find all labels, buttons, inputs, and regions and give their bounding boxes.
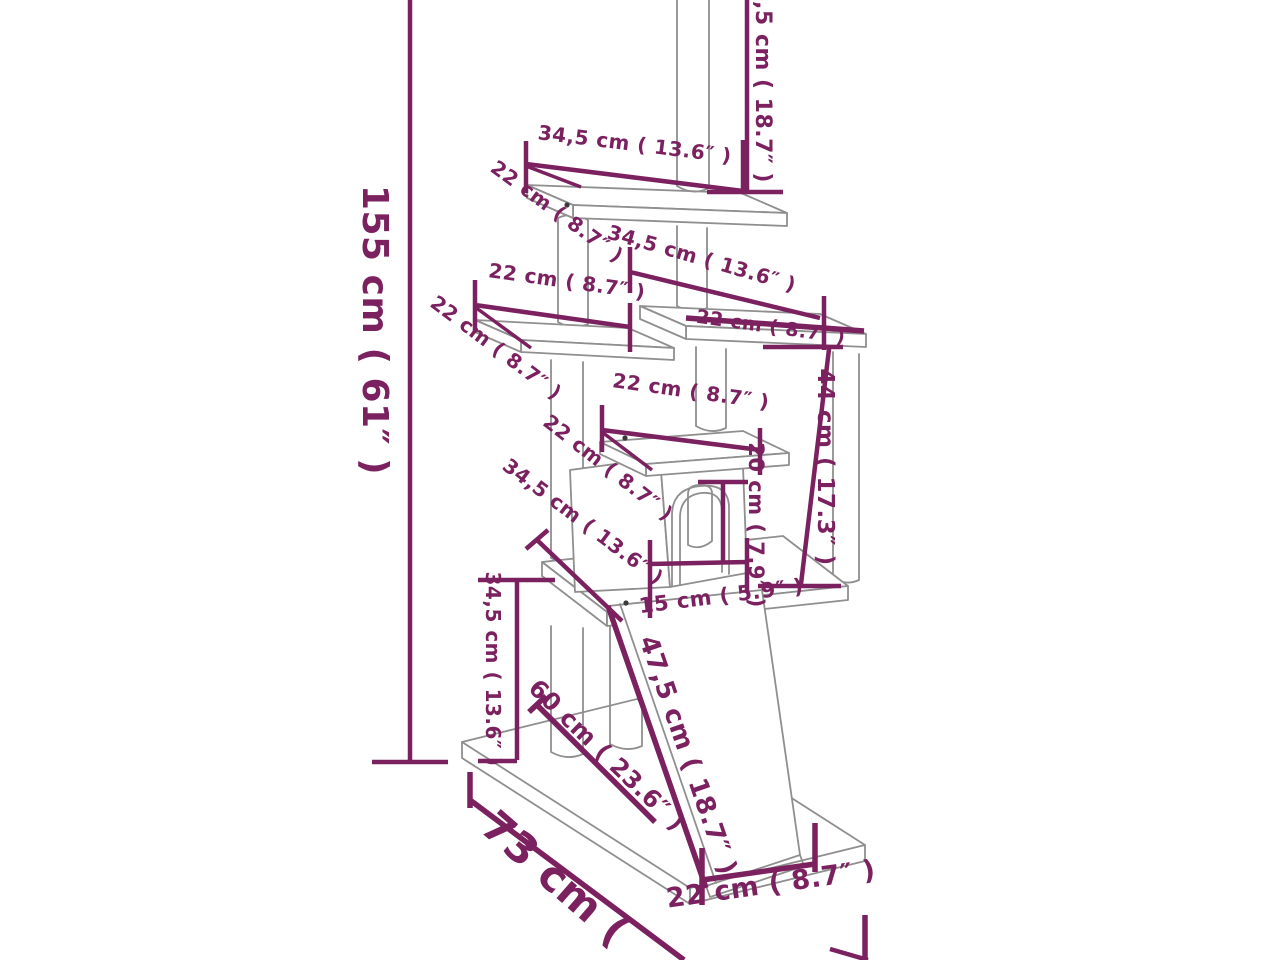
dim-bottom-right-partial [830, 915, 868, 960]
dim-upper-post-height-label: ,5 cm ( 18.7″ ) [750, 1, 775, 183]
diagram-canvas: 155 cm ( 61″ ) ,5 cm ( 18.7″ ) 34,5 cm (… [0, 0, 1280, 960]
dim-left-platform-width-label: 22 cm ( 8.7″ ) [487, 258, 647, 304]
dim-condo-roof-width-label: 22 cm ( 8.7″ ) [611, 368, 771, 414]
cat-tree-dimension-diagram: 155 cm ( 61″ ) ,5 cm ( 18.7″ ) 34,5 cm (… [0, 0, 1280, 960]
dim-total-height-label: 155 cm ( 61″ ) [354, 185, 395, 475]
screw-dot [622, 435, 627, 440]
dim-top-platform-width-label: 34,5 cm ( 13.6″ ) [537, 120, 733, 168]
screw-dot [623, 600, 628, 605]
dim-lower-section-height-label: 34,5 cm ( 13.6″ ) [481, 572, 505, 767]
dim-condo-height-label: 44 cm ( 17.3″ ) [812, 368, 838, 565]
